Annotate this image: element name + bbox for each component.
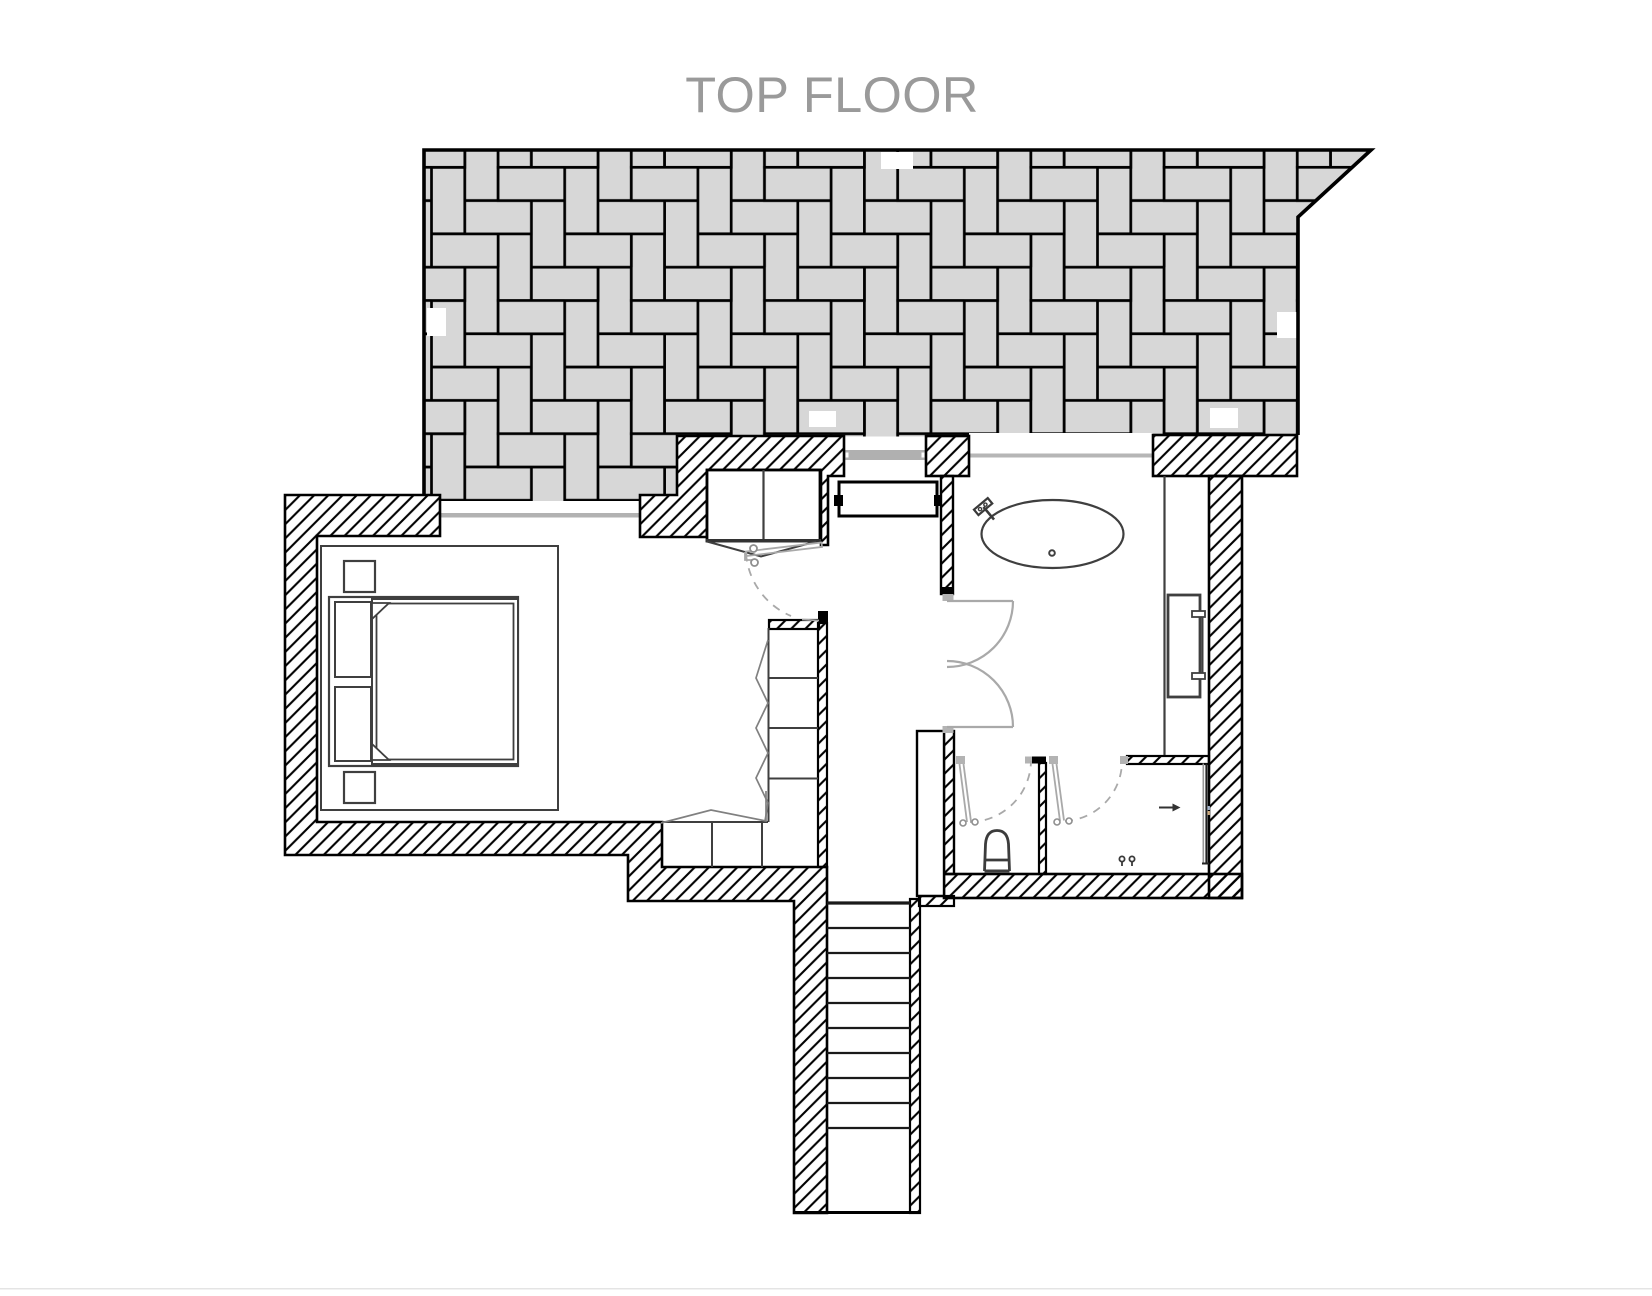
svg-text:TOP FLOOR: TOP FLOOR (685, 66, 979, 123)
